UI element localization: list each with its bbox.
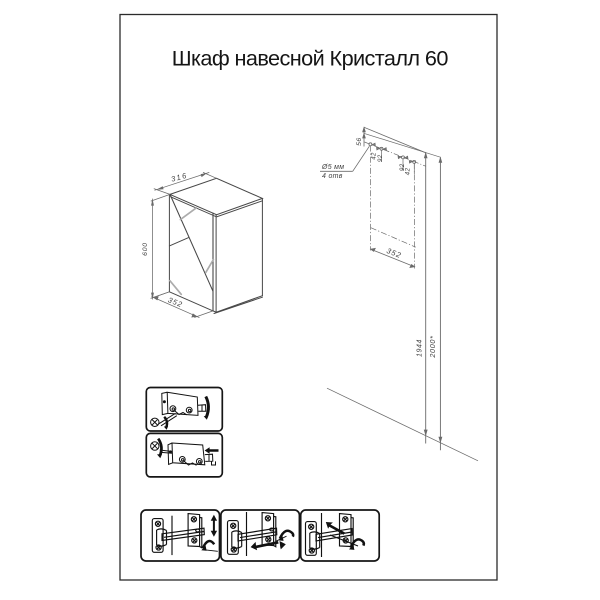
svg-text:4 отв: 4 отв: [322, 173, 343, 180]
svg-text:Шкаф навесной Кристалл 60: Шкаф навесной Кристалл 60: [172, 45, 449, 70]
svg-text:316: 316: [170, 171, 189, 184]
svg-text:Ø5 мм: Ø5 мм: [321, 164, 344, 171]
svg-text:92: 92: [377, 154, 384, 162]
svg-text:352: 352: [385, 246, 403, 260]
svg-text:42: 42: [405, 167, 412, 175]
svg-text:600: 600: [142, 242, 149, 256]
svg-text:2000*: 2000*: [428, 335, 437, 358]
svg-text:56: 56: [356, 137, 363, 146]
svg-text:1944: 1944: [417, 339, 424, 357]
